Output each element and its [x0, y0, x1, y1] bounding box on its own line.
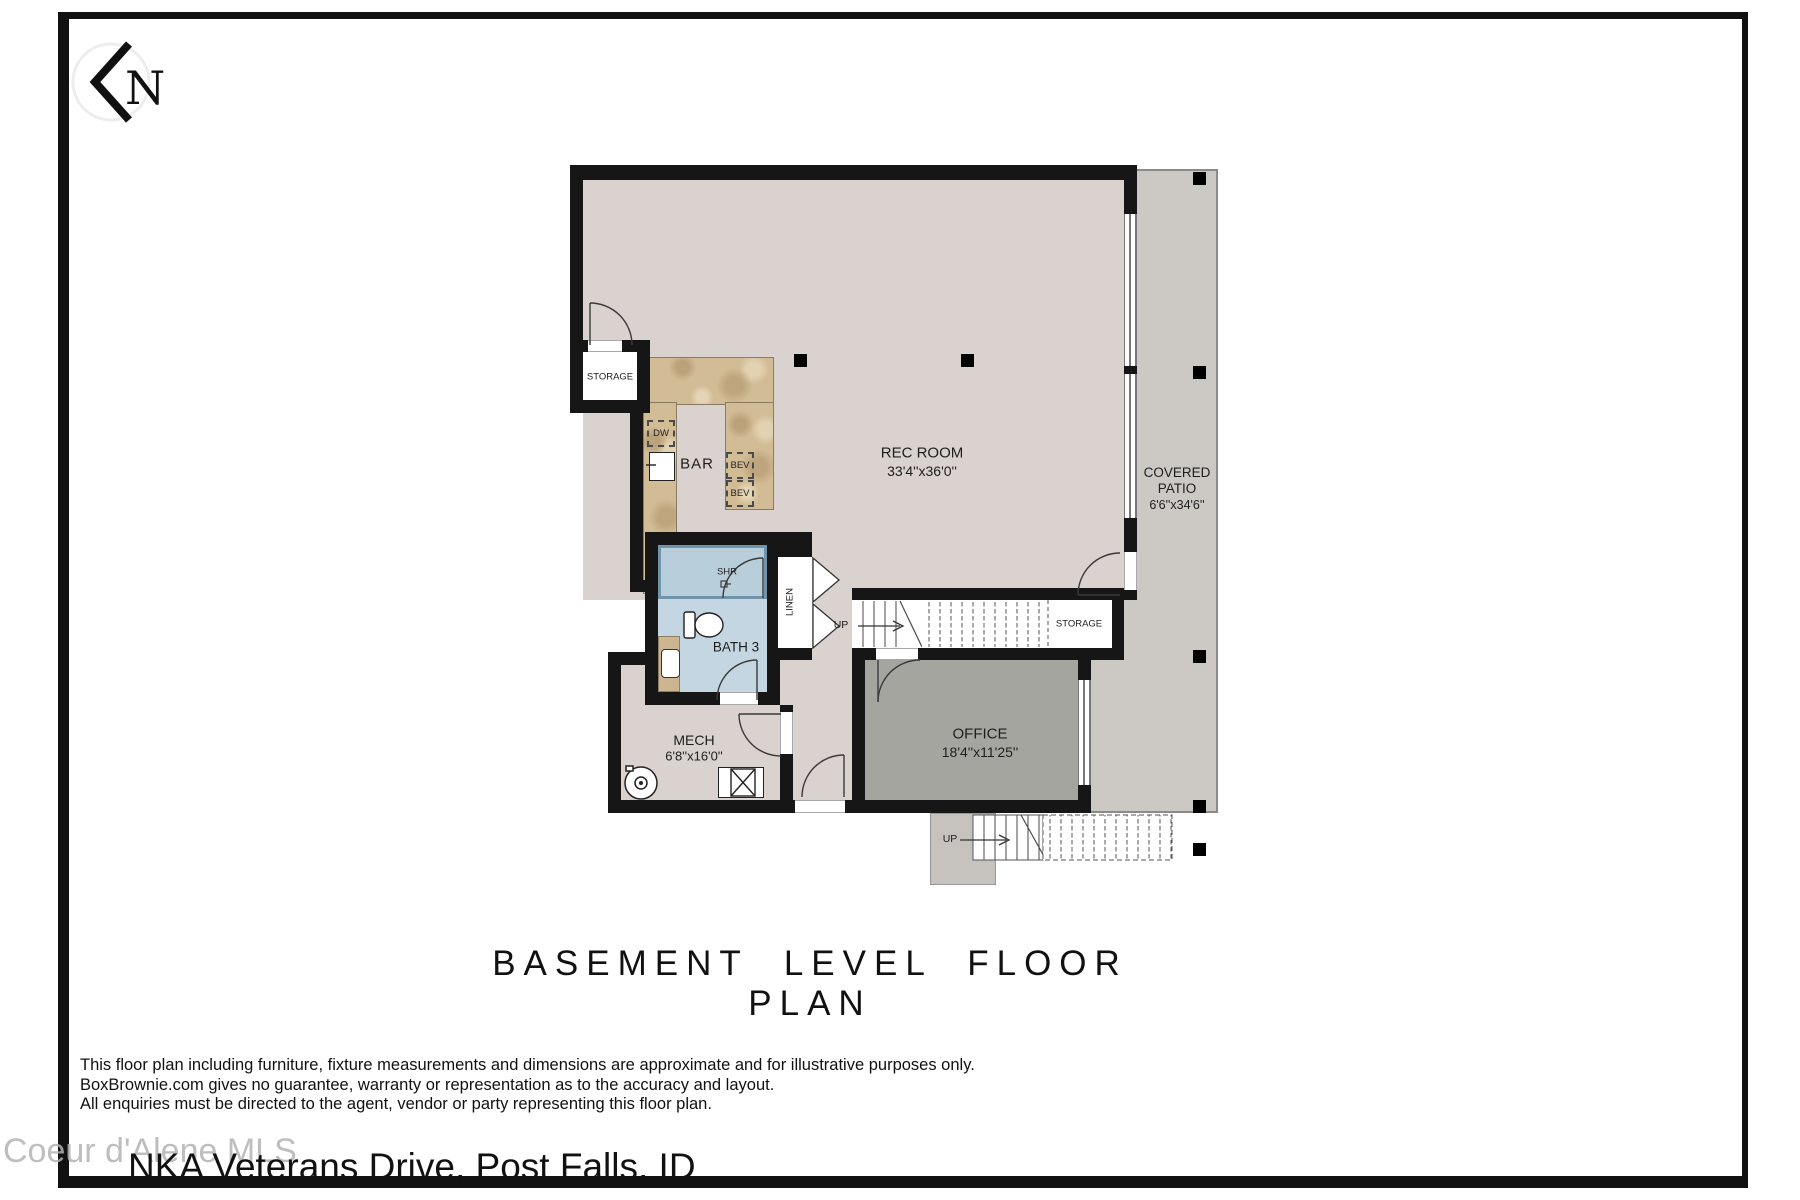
storage-upper-door [590, 303, 632, 345]
storage-upper-label: STORAGE [587, 372, 633, 383]
plan-title: BASEMENT LEVEL FLOOR PLAN [490, 944, 1130, 1024]
water-heater [625, 766, 657, 799]
office-door [878, 660, 920, 702]
mech-label: MECH [673, 732, 714, 748]
bar-label: BAR [680, 456, 714, 473]
main-stairs [856, 600, 1048, 648]
mech-door [739, 714, 781, 756]
linen-label: LINEN [785, 588, 796, 616]
shower-door [723, 558, 763, 598]
mech-dims: 6'8''x16'0'' [665, 749, 723, 764]
north-letter: N [125, 61, 165, 115]
bath-door [717, 660, 757, 700]
disclaimer-text: This floor plan including furniture, fix… [80, 1056, 975, 1115]
disclaimer-line-2: BoxBrownie.com gives no guarantee, warra… [80, 1076, 975, 1096]
rec-room-label: REC ROOM [881, 445, 964, 462]
patio-rec-door [1078, 553, 1120, 595]
furnace-icon [731, 769, 755, 796]
exterior-up-label: UP [943, 833, 958, 845]
stairs-up-label: UP [834, 619, 849, 631]
rec-room-dims: 33'4''x36'0'' [887, 463, 957, 479]
bath3-label: BATH 3 [713, 640, 759, 655]
office-dims: 18'4''x11'25'' [942, 744, 1019, 760]
north-compass: N [45, 22, 205, 152]
disclaimer-line-1: This floor plan including furniture, fix… [80, 1056, 975, 1076]
covered-patio-dims: 6'6''x34'6'' [1149, 498, 1204, 512]
linen-bifold-doors [813, 558, 839, 648]
floorplan-page: N DW BEV BEV [0, 0, 1800, 1200]
shower-label: SHR [717, 567, 737, 578]
exterior-door [802, 755, 844, 797]
disclaimer-line-3: All enquiries must be directed to the ag… [80, 1095, 975, 1115]
exterior-stairs [960, 815, 1172, 860]
office-label: OFFICE [953, 726, 1008, 743]
storage-under-stairs-label: STORAGE [1056, 619, 1102, 630]
property-address: NKA Veterans Drive, Post Falls, ID [128, 1146, 696, 1188]
toilet [684, 612, 723, 638]
covered-patio-label: COVERED PATIO [1135, 465, 1219, 497]
